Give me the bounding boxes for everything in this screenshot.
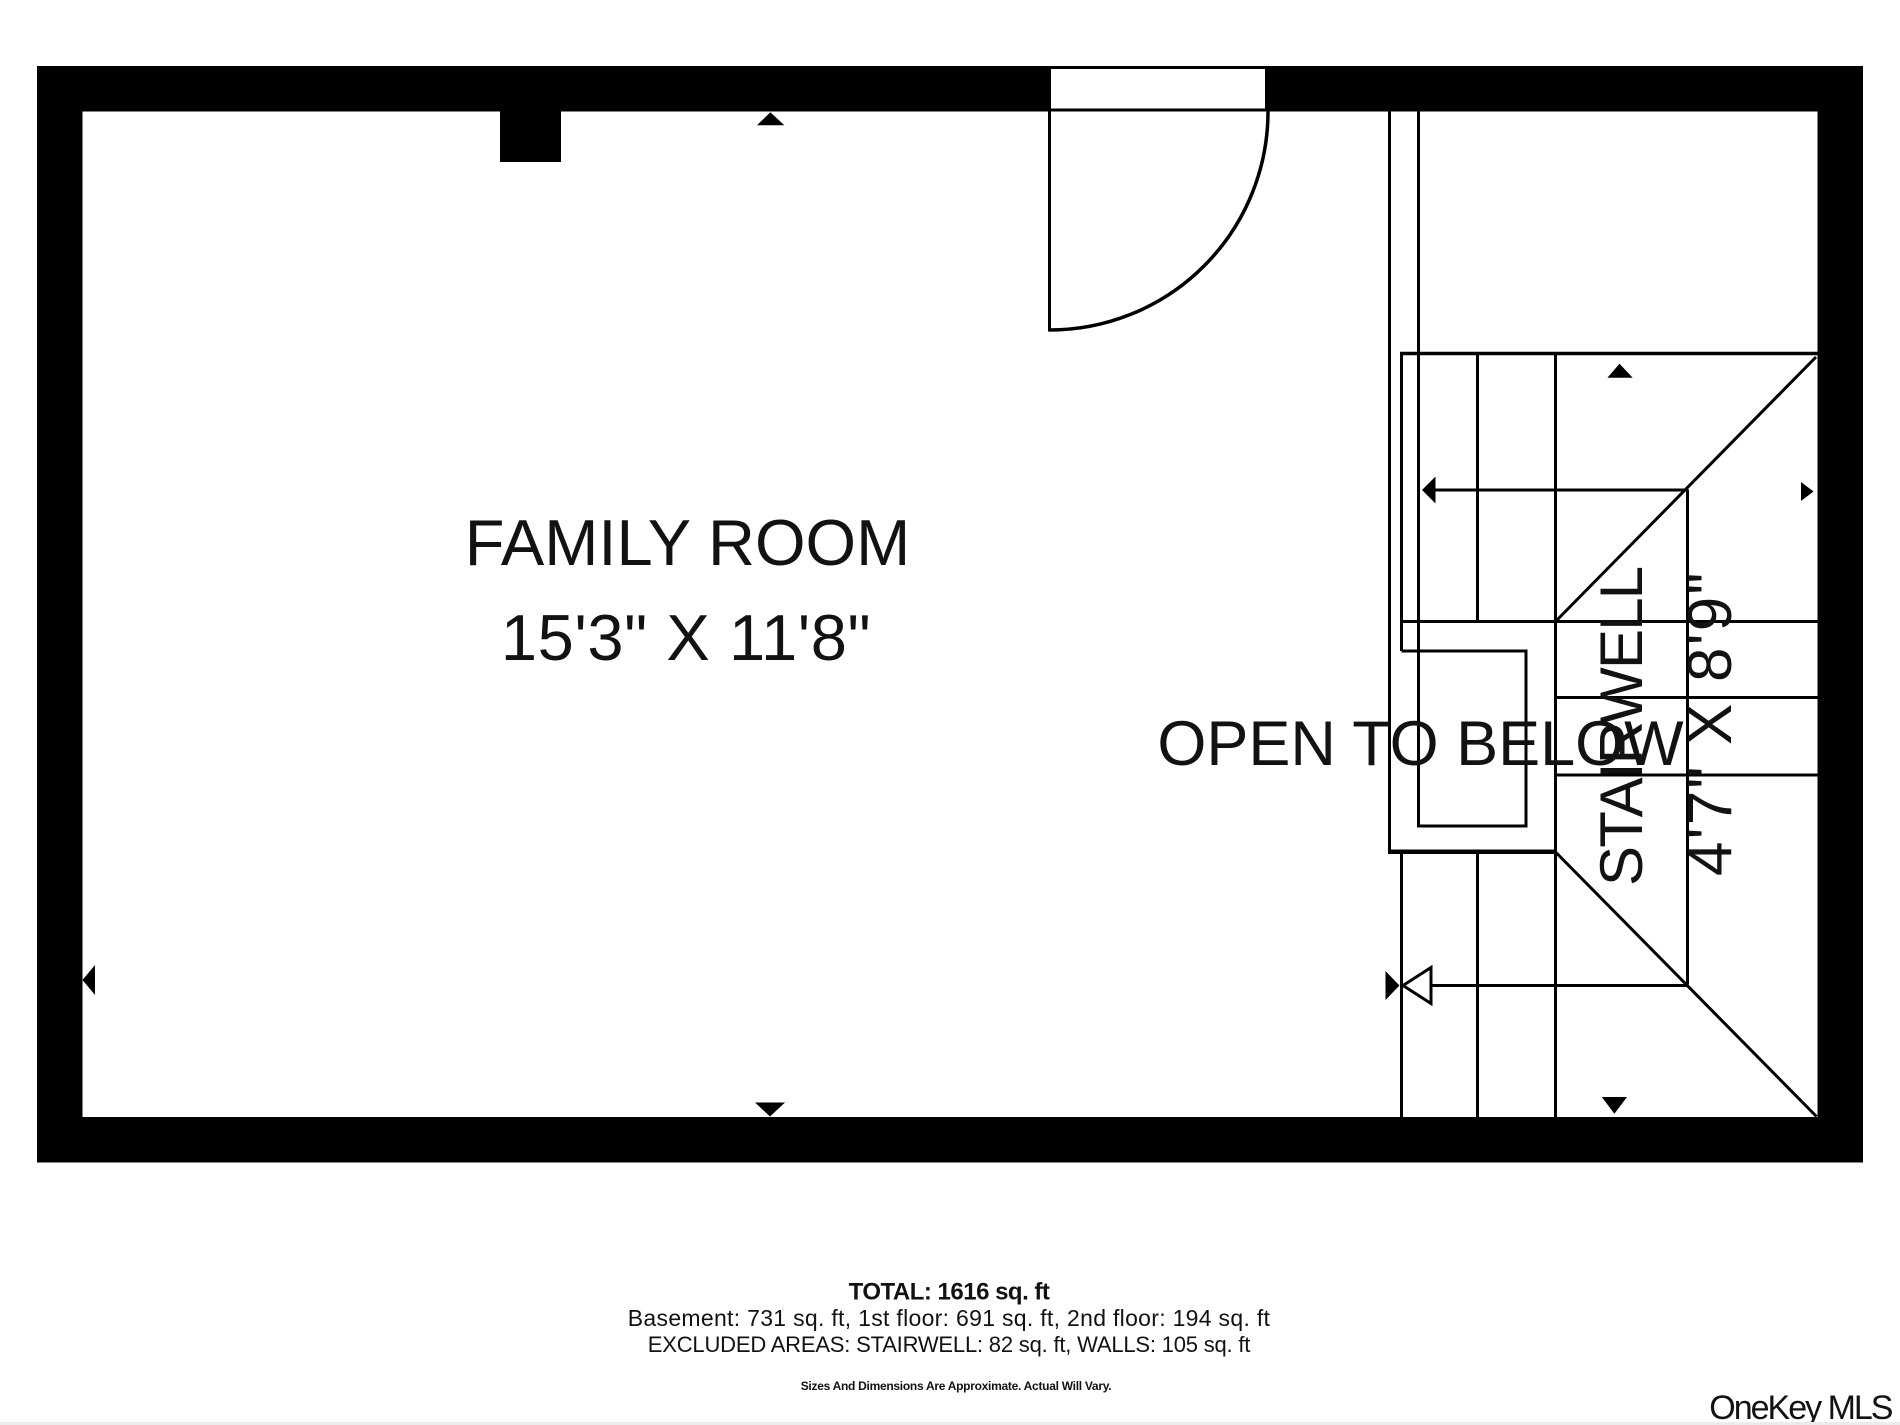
svg-text:EXCLUDED AREAS: STAIRWELL: 82: EXCLUDED AREAS: STAIRWELL: 82 sq. ft, WA… xyxy=(648,1332,1250,1357)
svg-text:FAMILY ROOM: FAMILY ROOM xyxy=(465,506,910,579)
svg-text:Sizes And Dimensions Are Appro: Sizes And Dimensions Are Approximate. Ac… xyxy=(801,1379,1112,1393)
svg-text:STAIRWELL: STAIRWELL xyxy=(1588,567,1655,886)
svg-text:4'7" X 8'9": 4'7" X 8'9" xyxy=(1676,570,1745,876)
svg-text:TOTAL: 1616 sq. ft: TOTAL: 1616 sq. ft xyxy=(849,1279,1050,1306)
svg-text:Basement: 731 sq. ft, 1st floo: Basement: 731 sq. ft, 1st floor: 691 sq.… xyxy=(628,1305,1271,1331)
svg-text:OneKey MLS: OneKey MLS xyxy=(1709,1389,1893,1425)
svg-text:15'3" X 11'8": 15'3" X 11'8" xyxy=(501,601,871,674)
